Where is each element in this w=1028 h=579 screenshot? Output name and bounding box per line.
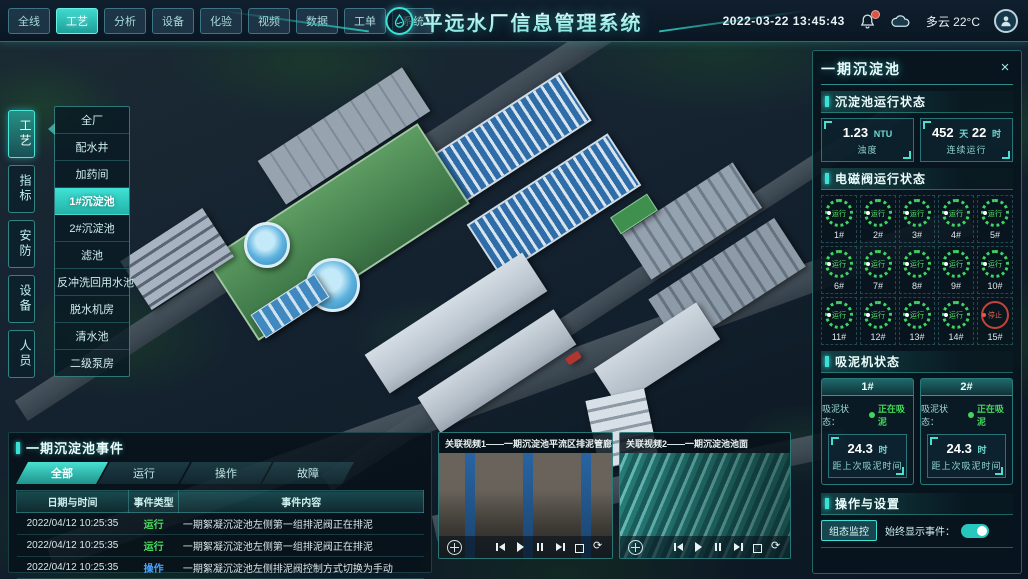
valve-status-text: 运行 (910, 259, 924, 269)
valve-status-text: 运行 (871, 310, 885, 320)
valve-gauge-icon: 运行 (864, 250, 892, 278)
loop-icon[interactable] (771, 542, 782, 552)
mud-time-unit: 时 (977, 445, 986, 455)
event-row[interactable]: 2022/04/12 10:25:35 运行 一期絮凝沉淀池左侧第一组排泥阀正在… (17, 513, 424, 535)
turbidity-label: 浊度 (824, 143, 911, 156)
play-icon[interactable] (693, 542, 704, 552)
valve-gauge-icon: 运行 (903, 301, 931, 329)
valve-status-cell[interactable]: 运行 11# (821, 297, 857, 345)
valve-gauge-icon: 运行 (864, 199, 892, 227)
mud-scraper-card: 2# 吸泥状态： 正在吸泥 24.3 时 距上次吸泥时间 (920, 378, 1013, 485)
video-title: 关联视频1——一期沉淀池平流区排泥管廊 (439, 433, 612, 453)
playback-controls (495, 542, 604, 552)
valve-id-label: 13# (900, 332, 934, 342)
valve-gauge-icon: 停止 (981, 301, 1009, 329)
valve-id-label: 10# (978, 281, 1012, 291)
event-type-badge: 操作 (144, 564, 164, 575)
ptz-pad-icon[interactable] (628, 540, 643, 555)
events-table-header-row: 日期与时间 事件类型 事件内容 (17, 491, 424, 513)
valve-id-label: 2# (861, 230, 895, 240)
valve-status-text: 运行 (910, 310, 924, 320)
cloud-icon (890, 14, 912, 29)
event-row[interactable]: 2022/04/12 10:25:35 操作 一期絮凝沉淀池左侧排泥阀控制方式切… (17, 557, 424, 579)
valve-status-grid: 运行 1# 运行 2# 运行 3# 运行 (821, 195, 1013, 345)
turbidity-value: 1.23 (843, 125, 868, 140)
valve-status-text: 运行 (949, 259, 963, 269)
events-filter-tab[interactable]: 操作 (180, 462, 272, 484)
playback-controls (673, 542, 782, 552)
top-bar: 全线 工艺 分析 设备 化验 视频 数据 工单 系统 平远水厂信息管理系统 (0, 0, 1028, 42)
pause-icon[interactable] (713, 542, 724, 552)
valve-gauge-icon: 运行 (942, 250, 970, 278)
mud-scraper-card: 1# 吸泥状态： 正在吸泥 24.3 时 距上次吸泥时间 (821, 378, 914, 485)
detail-panel: 一期沉淀池 沉淀池运行状态 1.23 NTU 浊度 452 天 22 时 连续运… (812, 50, 1022, 574)
valve-gauge-icon: 运行 (981, 250, 1009, 278)
valve-status-text: 运行 (871, 259, 885, 269)
section-title: 操作与设置 (835, 495, 900, 512)
valve-gauge-icon: 运行 (903, 250, 931, 278)
mud-status-value: 正在吸泥 (878, 402, 913, 428)
next-icon[interactable] (555, 542, 566, 552)
submenu-item[interactable]: 加药间 (55, 161, 129, 188)
mud-time-label: 距上次吸泥时间 (831, 459, 904, 472)
valve-gauge-icon: 运行 (825, 250, 853, 278)
map-round-pool (244, 222, 290, 268)
uptime-days-value: 452 (932, 125, 954, 140)
valve-status-text: 停止 (988, 310, 1002, 320)
fullscreen-icon[interactable] (753, 544, 762, 553)
video-stream[interactable] (439, 453, 612, 558)
section-accent-bar (16, 442, 20, 454)
valve-gauge-icon: 运行 (825, 199, 853, 227)
valve-status-cell[interactable]: 运行 8# (899, 246, 935, 294)
datetime-text: 2022-03-22 13:45:43 (723, 14, 845, 28)
valve-id-label: 11# (822, 332, 856, 342)
mud-status-label: 吸泥状态： (822, 402, 866, 428)
events-panel-title: 一期沉淀池事件 (26, 438, 124, 457)
events-column-header: 日期与时间 (17, 491, 129, 513)
section-accent-bar (825, 356, 829, 367)
valve-gauge-icon: 运行 (825, 301, 853, 329)
section-header-running: 沉淀池运行状态 (821, 91, 1013, 113)
valve-gauge-icon: 运行 (864, 301, 892, 329)
valve-status-cell[interactable]: 运行 10# (977, 246, 1013, 294)
main-nav-tab[interactable]: 分析 (104, 8, 146, 34)
weather-text: 多云 22°C (926, 13, 980, 30)
uptime-days-unit: 天 (959, 129, 968, 139)
events-filter-tab[interactable]: 全部 (16, 462, 108, 484)
section-title: 吸泥机状态 (835, 353, 900, 370)
video-controls (620, 536, 790, 558)
valve-status-text: 运行 (988, 259, 1002, 269)
sidebar-category-tab[interactable]: 设备 (8, 275, 35, 323)
valve-id-label: 8# (900, 281, 934, 291)
submenu-item[interactable]: 全厂 (55, 107, 129, 134)
uptime-hours-unit: 时 (992, 129, 1001, 139)
mud-time-stat: 24.3 时 距上次吸泥时间 (927, 434, 1006, 478)
valve-status-text: 运行 (871, 208, 885, 218)
mud-status-label: 吸泥状态： (921, 402, 965, 428)
valve-status-cell[interactable]: 运行 6# (821, 246, 857, 294)
submenu-item[interactable]: 二级泵房 (55, 350, 129, 376)
valve-status-cell[interactable]: 运行 12# (860, 297, 896, 345)
submenu-item[interactable]: 1#沉淀池 (55, 188, 129, 215)
sidebar-category-tab[interactable]: 安防 (8, 220, 35, 268)
event-time: 2022/04/12 10:25:35 (17, 535, 129, 557)
valve-id-label: 4# (939, 230, 973, 240)
main-nav-tab[interactable]: 工艺 (56, 8, 98, 34)
video-panel-2: 关联视频2——一期沉淀池池面 (619, 432, 791, 559)
video-title: 关联视频2——一期沉淀池池面 (620, 433, 790, 453)
show-events-toggle[interactable] (961, 524, 989, 538)
valve-id-label: 12# (861, 332, 895, 342)
turbidity-stat: 1.23 NTU 浊度 (821, 118, 914, 162)
video-stream[interactable] (620, 453, 790, 558)
event-type-badge: 运行 (144, 542, 164, 553)
avatar-icon[interactable] (994, 9, 1018, 33)
valve-status-text: 运行 (949, 208, 963, 218)
events-filter-tab[interactable]: 运行 (98, 462, 190, 484)
valve-status-cell[interactable]: 运行 13# (899, 297, 935, 345)
status-dot-icon (968, 412, 974, 418)
section-header-mud: 吸泥机状态 (821, 351, 1013, 373)
events-column-header: 事件内容 (179, 491, 424, 513)
sidebar-category-tab[interactable]: 人员 (8, 330, 35, 378)
mud-status-value: 正在吸泥 (977, 402, 1012, 428)
valve-id-label: 7# (861, 281, 895, 291)
event-row[interactable]: 2022/04/12 10:25:35 运行 一期絮凝沉淀池左侧第一组排泥阀正在… (17, 535, 424, 557)
scada-monitor-button[interactable]: 组态监控 (821, 520, 877, 541)
event-content: 一期絮凝沉淀池左侧第一组排泥阀正在排泥 (179, 535, 424, 557)
events-filter-tabs: 全部 运行 操作 故障 (16, 462, 424, 484)
events-column-header: 事件类型 (128, 491, 178, 513)
section-accent-bar (825, 498, 829, 509)
section-title: 电磁阀运行状态 (835, 170, 926, 187)
prev-icon[interactable] (673, 542, 684, 552)
valve-status-text: 运行 (832, 259, 846, 269)
video-controls (439, 536, 612, 558)
valve-id-label: 15# (978, 332, 1012, 342)
valve-id-label: 14# (939, 332, 973, 342)
mud-status-row: 吸泥状态： 正在吸泥 (921, 402, 1012, 428)
section-header-valves: 电磁阀运行状态 (821, 168, 1013, 190)
valve-status-text: 运行 (832, 310, 846, 320)
page-title: 平远水厂信息管理系统 (423, 7, 643, 36)
section-header-settings: 操作与设置 (821, 493, 1013, 515)
valve-id-label: 5# (978, 230, 1012, 240)
turbidity-unit: NTU (874, 129, 893, 139)
mud-time-value: 24.3 (947, 441, 972, 456)
uptime-label: 连续运行 (923, 143, 1010, 156)
top-right-cluster: 2022-03-22 13:45:43 多云 22°C (723, 0, 1018, 42)
valve-gauge-icon: 运行 (942, 199, 970, 227)
events-panel-header: 一期沉淀池事件 (16, 438, 424, 457)
play-icon[interactable] (515, 542, 526, 552)
event-time: 2022/04/12 10:25:35 (17, 513, 129, 535)
valve-status-cell[interactable]: 运行 7# (860, 246, 896, 294)
event-content: 一期絮凝沉淀池左侧第一组排泥阀正在排泥 (179, 513, 424, 535)
video-panel-1: 关联视频1——一期沉淀池平流区排泥管廊 (438, 432, 613, 559)
valve-id-label: 3# (900, 230, 934, 240)
valve-status-cell[interactable]: 停止 15# (977, 297, 1013, 345)
submenu-item[interactable]: 滤池 (55, 242, 129, 269)
next-icon[interactable] (733, 542, 744, 552)
valve-status-cell[interactable]: 运行 5# (977, 195, 1013, 243)
mud-time-label: 距上次吸泥时间 (930, 459, 1003, 472)
submenu-item[interactable]: 反冲洗回用水池 (55, 269, 129, 296)
mud-card-id: 2# (921, 379, 1012, 396)
detail-panel-header: 一期沉淀池 (821, 57, 1013, 85)
mud-card-id: 1# (822, 379, 913, 396)
event-time: 2022/04/12 10:25:35 (17, 557, 129, 579)
sidebar-category-tabs: 工艺 指标 安防 设备 人员 (8, 110, 35, 378)
prev-icon[interactable] (495, 542, 506, 552)
submenu-item[interactable]: 清水池 (55, 323, 129, 350)
valve-status-cell[interactable]: 运行 14# (938, 297, 974, 345)
sidebar-category-tab[interactable]: 指标 (8, 165, 35, 213)
valve-gauge-icon: 运行 (903, 199, 931, 227)
show-events-toggle-label: 始终显示事件： (885, 523, 955, 538)
events-table-body: 2022/04/12 10:25:35 运行 一期絮凝沉淀池左侧第一组排泥阀正在… (17, 513, 424, 579)
valve-id-label: 9# (939, 281, 973, 291)
events-panel: 一期沉淀池事件 全部 运行 操作 故障 日期与时间 事件类型 事件内容 (8, 432, 432, 573)
section-accent-bar (825, 173, 829, 184)
mud-time-value: 24.3 (848, 441, 873, 456)
notification-badge (871, 10, 880, 19)
mud-scraper-cards: 1# 吸泥状态： 正在吸泥 24.3 时 距上次吸泥时间 2# (821, 378, 1013, 485)
valve-status-text: 运行 (832, 208, 846, 218)
ptz-pad-icon[interactable] (447, 540, 462, 555)
valve-status-cell[interactable]: 运行 1# (821, 195, 857, 243)
settings-row: 组态监控 始终显示事件： (821, 520, 1013, 548)
valve-status-text: 运行 (910, 208, 924, 218)
uptime-stat: 452 天 22 时 连续运行 (920, 118, 1013, 162)
pause-icon[interactable] (535, 542, 546, 552)
section-accent-bar (825, 96, 829, 107)
section-title: 沉淀池运行状态 (835, 93, 926, 110)
uptime-hours-value: 22 (972, 125, 986, 140)
valve-status-cell[interactable]: 运行 9# (938, 246, 974, 294)
mud-time-stat: 24.3 时 距上次吸泥时间 (828, 434, 907, 478)
submenu-item[interactable]: 2#沉淀池 (55, 215, 129, 242)
process-submenu: 全厂 配水井 加药间 1#沉淀池 2#沉淀池 滤池 反冲洗回用水池 脱水机房 清… (54, 106, 130, 377)
submenu-item[interactable]: 脱水机房 (55, 296, 129, 323)
loop-icon[interactable] (593, 542, 604, 552)
events-table: 日期与时间 事件类型 事件内容 2022/04/12 10:25:35 运行 一… (16, 490, 424, 579)
valve-status-cell[interactable]: 运行 3# (899, 195, 935, 243)
event-content: 一期絮凝沉淀池左侧排泥阀控制方式切换为手动 (179, 557, 424, 579)
main-nav-tab[interactable]: 设备 (152, 8, 194, 34)
valve-id-label: 6# (822, 281, 856, 291)
detail-panel-title: 一期沉淀池 (821, 59, 901, 79)
valve-gauge-icon: 运行 (942, 301, 970, 329)
main-nav-tab[interactable]: 全线 (8, 8, 50, 34)
fullscreen-icon[interactable] (575, 544, 584, 553)
mud-time-unit: 时 (878, 445, 887, 455)
logo-water-icon (386, 7, 414, 35)
events-filter-tab[interactable]: 故障 (262, 462, 354, 484)
valve-gauge-icon: 运行 (981, 199, 1009, 227)
running-stats: 1.23 NTU 浊度 452 天 22 时 连续运行 (821, 118, 1013, 162)
valve-status-cell[interactable]: 运行 2# (860, 195, 896, 243)
valve-status-text: 运行 (988, 208, 1002, 218)
bell-icon[interactable] (859, 13, 876, 30)
mud-status-row: 吸泥状态： 正在吸泥 (822, 402, 913, 428)
status-dot-icon (869, 412, 875, 418)
valve-status-text: 运行 (949, 310, 963, 320)
valve-id-label: 1# (822, 230, 856, 240)
sidebar-category-tab[interactable]: 工艺 (8, 110, 35, 158)
valve-status-cell[interactable]: 运行 4# (938, 195, 974, 243)
event-type-badge: 运行 (144, 520, 164, 531)
close-icon[interactable] (997, 61, 1013, 77)
submenu-item[interactable]: 配水井 (55, 134, 129, 161)
app-header: 平远水厂信息管理系统 (360, 0, 669, 42)
